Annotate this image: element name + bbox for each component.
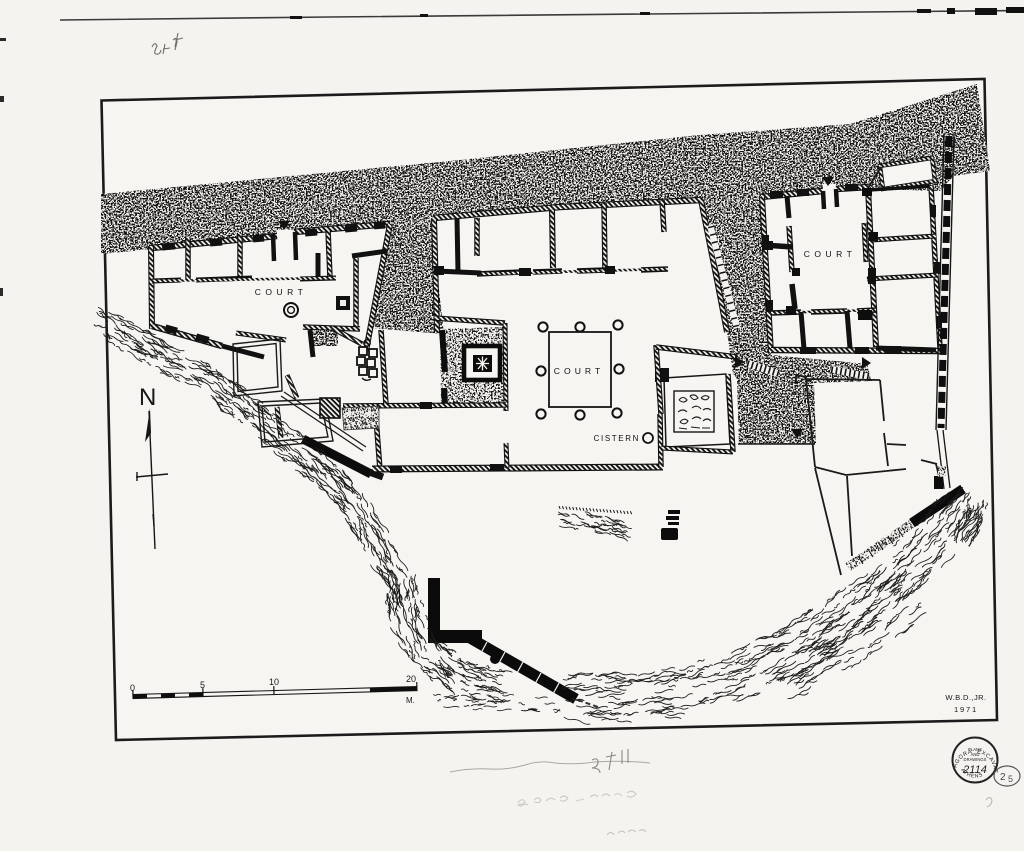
svg-text:COURT: COURT bbox=[554, 366, 604, 376]
svg-text:CISTERN: CISTERN bbox=[594, 434, 640, 443]
svg-text:1971: 1971 bbox=[954, 705, 978, 714]
svg-text:2114: 2114 bbox=[962, 764, 987, 776]
svg-text:N: N bbox=[139, 384, 156, 411]
svg-text:W.B.D.,JR.: W.B.D.,JR. bbox=[945, 693, 986, 702]
svg-text:20: 20 bbox=[406, 674, 416, 684]
svg-text:0: 0 bbox=[130, 683, 135, 693]
svg-text:2: 2 bbox=[1000, 772, 1006, 783]
svg-text:DRAWINGS: DRAWINGS bbox=[964, 757, 987, 762]
svg-text:5: 5 bbox=[1008, 774, 1013, 784]
svg-text:10: 10 bbox=[269, 677, 279, 687]
svg-text:M.: M. bbox=[406, 696, 415, 705]
svg-text:5: 5 bbox=[200, 680, 205, 690]
svg-text:COURT: COURT bbox=[804, 249, 857, 259]
svg-text:COURT: COURT bbox=[255, 287, 308, 297]
